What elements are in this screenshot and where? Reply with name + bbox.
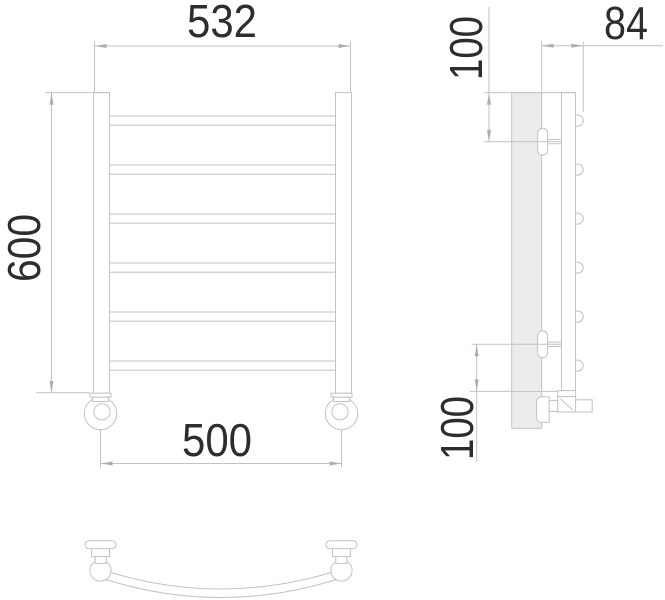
top-bracket-right: [326, 541, 357, 581]
dim-value-532: 532: [187, 0, 257, 47]
top-bracket-left: [85, 541, 116, 581]
valve-assembly: [537, 391, 593, 423]
rail-arc-inner: [106, 571, 336, 589]
valve-collar: [558, 391, 576, 397]
dim-top-offset: 100: [440, 7, 576, 142]
rail: [110, 165, 336, 174]
arrow-left-icon: [101, 462, 113, 466]
dim-overall-width: 532: [95, 0, 351, 92]
rail-ends: [576, 115, 584, 371]
drawing-svg: 532 600 500 84 100 100: [0, 0, 665, 600]
post-right: [336, 93, 352, 394]
dim-value-500: 500: [182, 414, 252, 466]
arrow-up-icon: [475, 344, 479, 356]
bracket-plate: [85, 541, 116, 549]
foot-left: [84, 393, 116, 467]
foot-collar-lower: [334, 397, 350, 401]
rails: [110, 116, 336, 370]
dim-value-100-bottom: 100: [431, 396, 483, 460]
rail-end: [576, 311, 584, 322]
dim-depth: 84: [542, 0, 663, 112]
dim-value-84: 84: [604, 0, 648, 49]
arrow-up-icon: [50, 93, 54, 105]
extension-line: [95, 42, 351, 93]
wall-escutcheon: [537, 397, 550, 423]
front-view: [84, 93, 357, 468]
escutcheon-circle: [84, 397, 116, 429]
valve-neck: [549, 400, 558, 411]
arrow-down-icon: [487, 130, 491, 142]
foot-collar: [331, 393, 352, 397]
rail: [110, 263, 336, 272]
pipe-circle: [332, 404, 348, 420]
bracket-arm: [548, 342, 562, 346]
arrow-left-icon: [542, 44, 554, 48]
post-left: [94, 93, 110, 394]
bracket-collar: [92, 548, 110, 556]
foot-collar-lower: [93, 397, 109, 401]
rail-arc-outer: [104, 579, 338, 598]
escutcheon-circle: [325, 397, 357, 429]
rail-end: [576, 262, 584, 273]
arrow-right-icon: [339, 44, 351, 48]
bracket-collar: [333, 548, 351, 556]
bracket-plate: [326, 541, 357, 549]
rail-end: [576, 164, 584, 175]
rail: [110, 361, 336, 370]
valve-outlet: [576, 400, 593, 412]
dim-value-100-top: 100: [440, 16, 492, 80]
rail: [110, 312, 336, 321]
pipe-circle: [94, 404, 110, 420]
arrow-down-icon: [50, 381, 54, 393]
rail-end: [576, 360, 584, 371]
dim-value-600: 600: [0, 214, 50, 282]
dim-mount-spacing: 500: [101, 414, 342, 466]
rail-end: [576, 213, 584, 224]
arrow-up-icon: [487, 93, 491, 105]
technical-drawing: 532 600 500 84 100 100: [0, 0, 665, 600]
arrow-right-icon: [330, 462, 342, 466]
rail: [110, 214, 336, 223]
foot-collar: [90, 393, 111, 397]
foot-right: [325, 393, 357, 467]
bracket-arm: [548, 139, 562, 143]
top-view: [85, 541, 357, 598]
post-side: [562, 93, 576, 391]
arrow-down-icon: [475, 379, 479, 391]
rail: [110, 116, 336, 125]
arrow-left-icon: [95, 44, 107, 48]
rail-end: [576, 115, 584, 126]
arrow-right-icon: [571, 44, 583, 48]
side-view: [512, 93, 592, 429]
